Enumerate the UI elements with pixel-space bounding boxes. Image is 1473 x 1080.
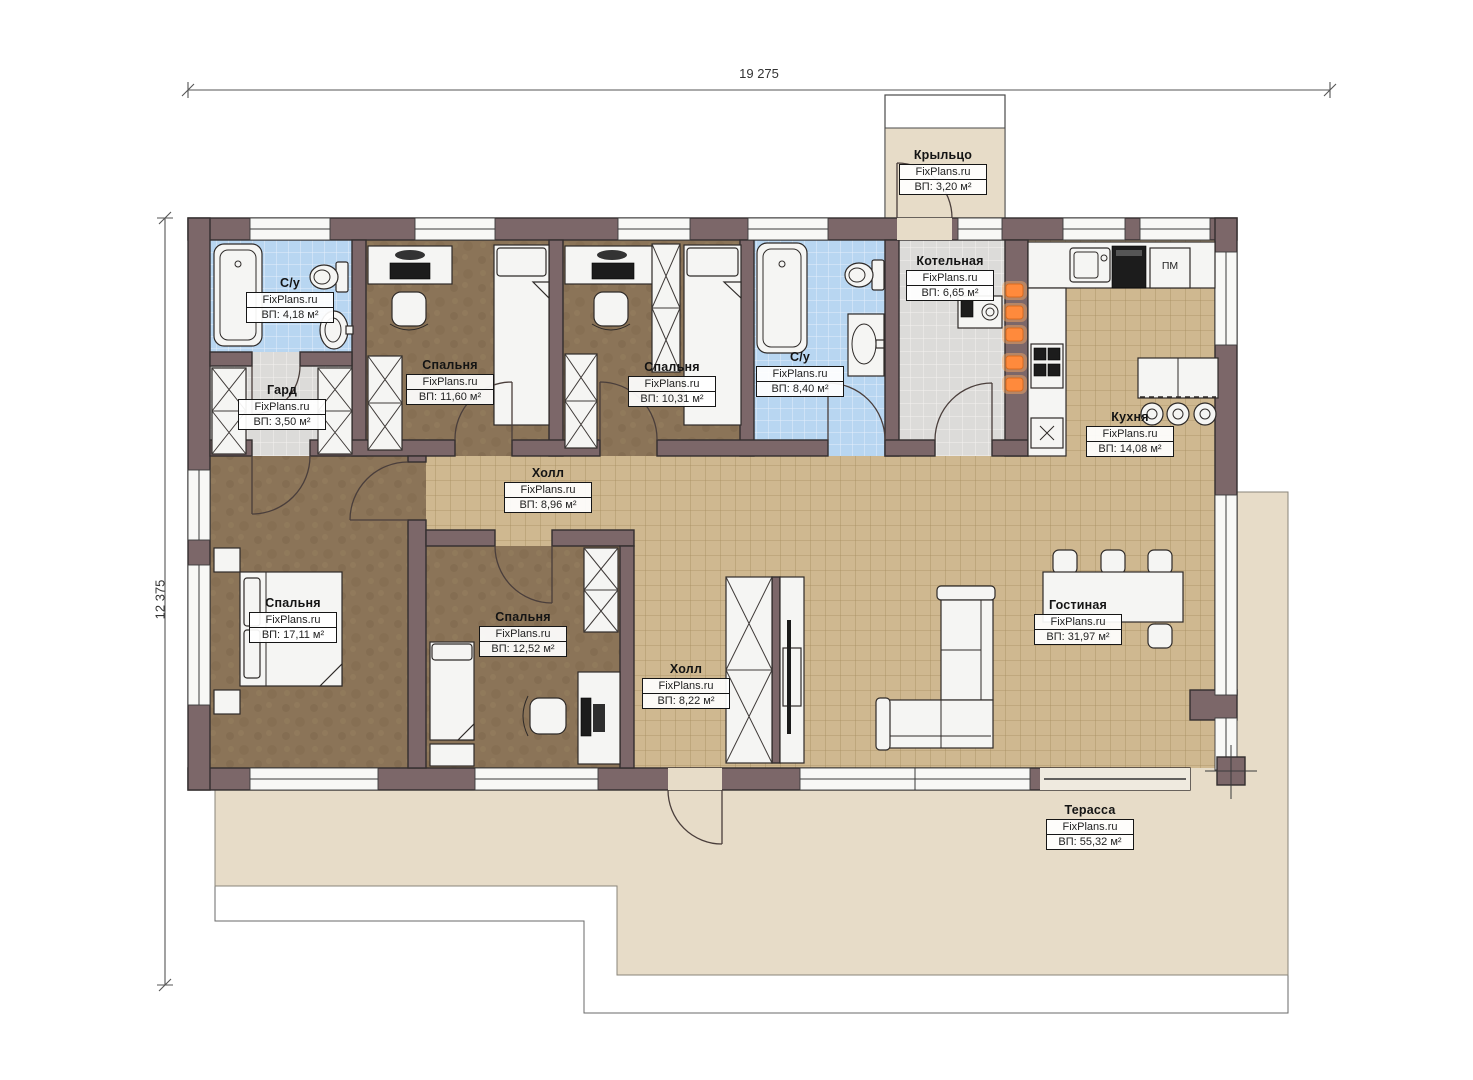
radiator (1002, 303, 1027, 322)
wardrobe (584, 548, 618, 632)
room-label-bathroom2: С/у FixPlans.ruВП: 8,40 м² (756, 350, 844, 397)
window (250, 218, 330, 240)
window (1140, 218, 1210, 240)
radiator (1002, 325, 1027, 344)
room-label-porch: Крыльцо FixPlans.ruВП: 3,20 м² (899, 148, 987, 195)
radiator (1002, 353, 1027, 372)
nightstand (430, 744, 474, 766)
doorway-gap (408, 462, 426, 520)
room-label-hall1: Холл FixPlans.ruВП: 8,96 м² (504, 466, 592, 513)
nightstand (214, 548, 240, 572)
dining-chair (1148, 624, 1172, 648)
bar-counter (1138, 358, 1218, 398)
window (415, 218, 495, 240)
window (958, 218, 1002, 240)
room-label-hall2: Холл FixPlans.ruВП: 8,22 м² (642, 662, 730, 709)
floor-plan-drawing (0, 0, 1473, 1080)
oven (1112, 246, 1146, 288)
room-label-wardrobe-room: Гард FixPlans.ruВП: 3,50 м² (238, 383, 326, 430)
room-label-bedroom1: Спальня FixPlans.ruВП: 11,60 м² (406, 358, 494, 405)
stove-hob (1031, 344, 1063, 388)
room-label-bedroom2: Спальня FixPlans.ruВП: 10,31 м² (628, 360, 716, 407)
room-label-boiler-room: Котельная FixPlans.ruВП: 6,65 м² (906, 254, 994, 301)
room-label-kitchen: Кухня FixPlans.ruВП: 14,08 м² (1086, 410, 1174, 457)
nightstand (214, 690, 240, 714)
tv-unit (780, 577, 804, 763)
tv (787, 620, 791, 734)
dimension-width: 19 275 (739, 66, 779, 81)
room-label-bedroom3: Спальня FixPlans.ruВП: 12,52 м² (479, 610, 567, 657)
window (188, 470, 210, 540)
kitchen-sink (1070, 248, 1110, 282)
room-label-master-bedroom: Спальня FixPlans.ruВП: 17,11 м² (249, 596, 337, 643)
dishwasher-label: ПМ (1162, 260, 1178, 272)
entrance-opening (897, 218, 952, 240)
bed (430, 642, 474, 740)
dimension-height: 12 375 (152, 580, 167, 620)
bed (494, 245, 549, 425)
doorway-gap (252, 352, 300, 366)
desk (565, 246, 653, 284)
window (618, 218, 690, 240)
dining-chair (1101, 550, 1125, 574)
bathtub (757, 243, 807, 353)
desk (368, 246, 452, 284)
bar-stool (1194, 403, 1216, 425)
window (188, 565, 210, 705)
radiators (1002, 281, 1027, 394)
window (1215, 495, 1237, 695)
wardrobe (565, 354, 597, 448)
window (1215, 252, 1237, 345)
window (800, 768, 1030, 790)
office-chair (592, 292, 630, 330)
hall-wardrobe (726, 577, 772, 763)
cabinet (1031, 418, 1063, 448)
room-label-terrace: Терасса FixPlans.ruВП: 55,32 м² (1046, 803, 1134, 850)
office-chair (390, 292, 428, 330)
radiator (1002, 281, 1027, 300)
room-label-living-room: Гостиная FixPlans.ruВП: 31,97 м² (1034, 598, 1122, 645)
window (1063, 218, 1125, 240)
dining-chair (1053, 550, 1077, 574)
window (250, 768, 378, 790)
window (475, 768, 598, 790)
wardrobe (652, 244, 680, 372)
terrace-door-opening (668, 768, 722, 790)
washstand-sink (848, 314, 884, 376)
sliding-glass-door (1040, 768, 1190, 790)
radiator (1002, 375, 1027, 394)
dining-chair (1148, 550, 1172, 574)
wardrobe (368, 356, 402, 450)
room-label-bathroom1: С/у FixPlans.ruВП: 4,18 м² (246, 276, 334, 323)
floor-plan: 19 275 12 375 ПМ Крыльцо FixPlans.ruВП: … (0, 0, 1473, 1080)
desk (578, 672, 620, 764)
window (748, 218, 828, 240)
